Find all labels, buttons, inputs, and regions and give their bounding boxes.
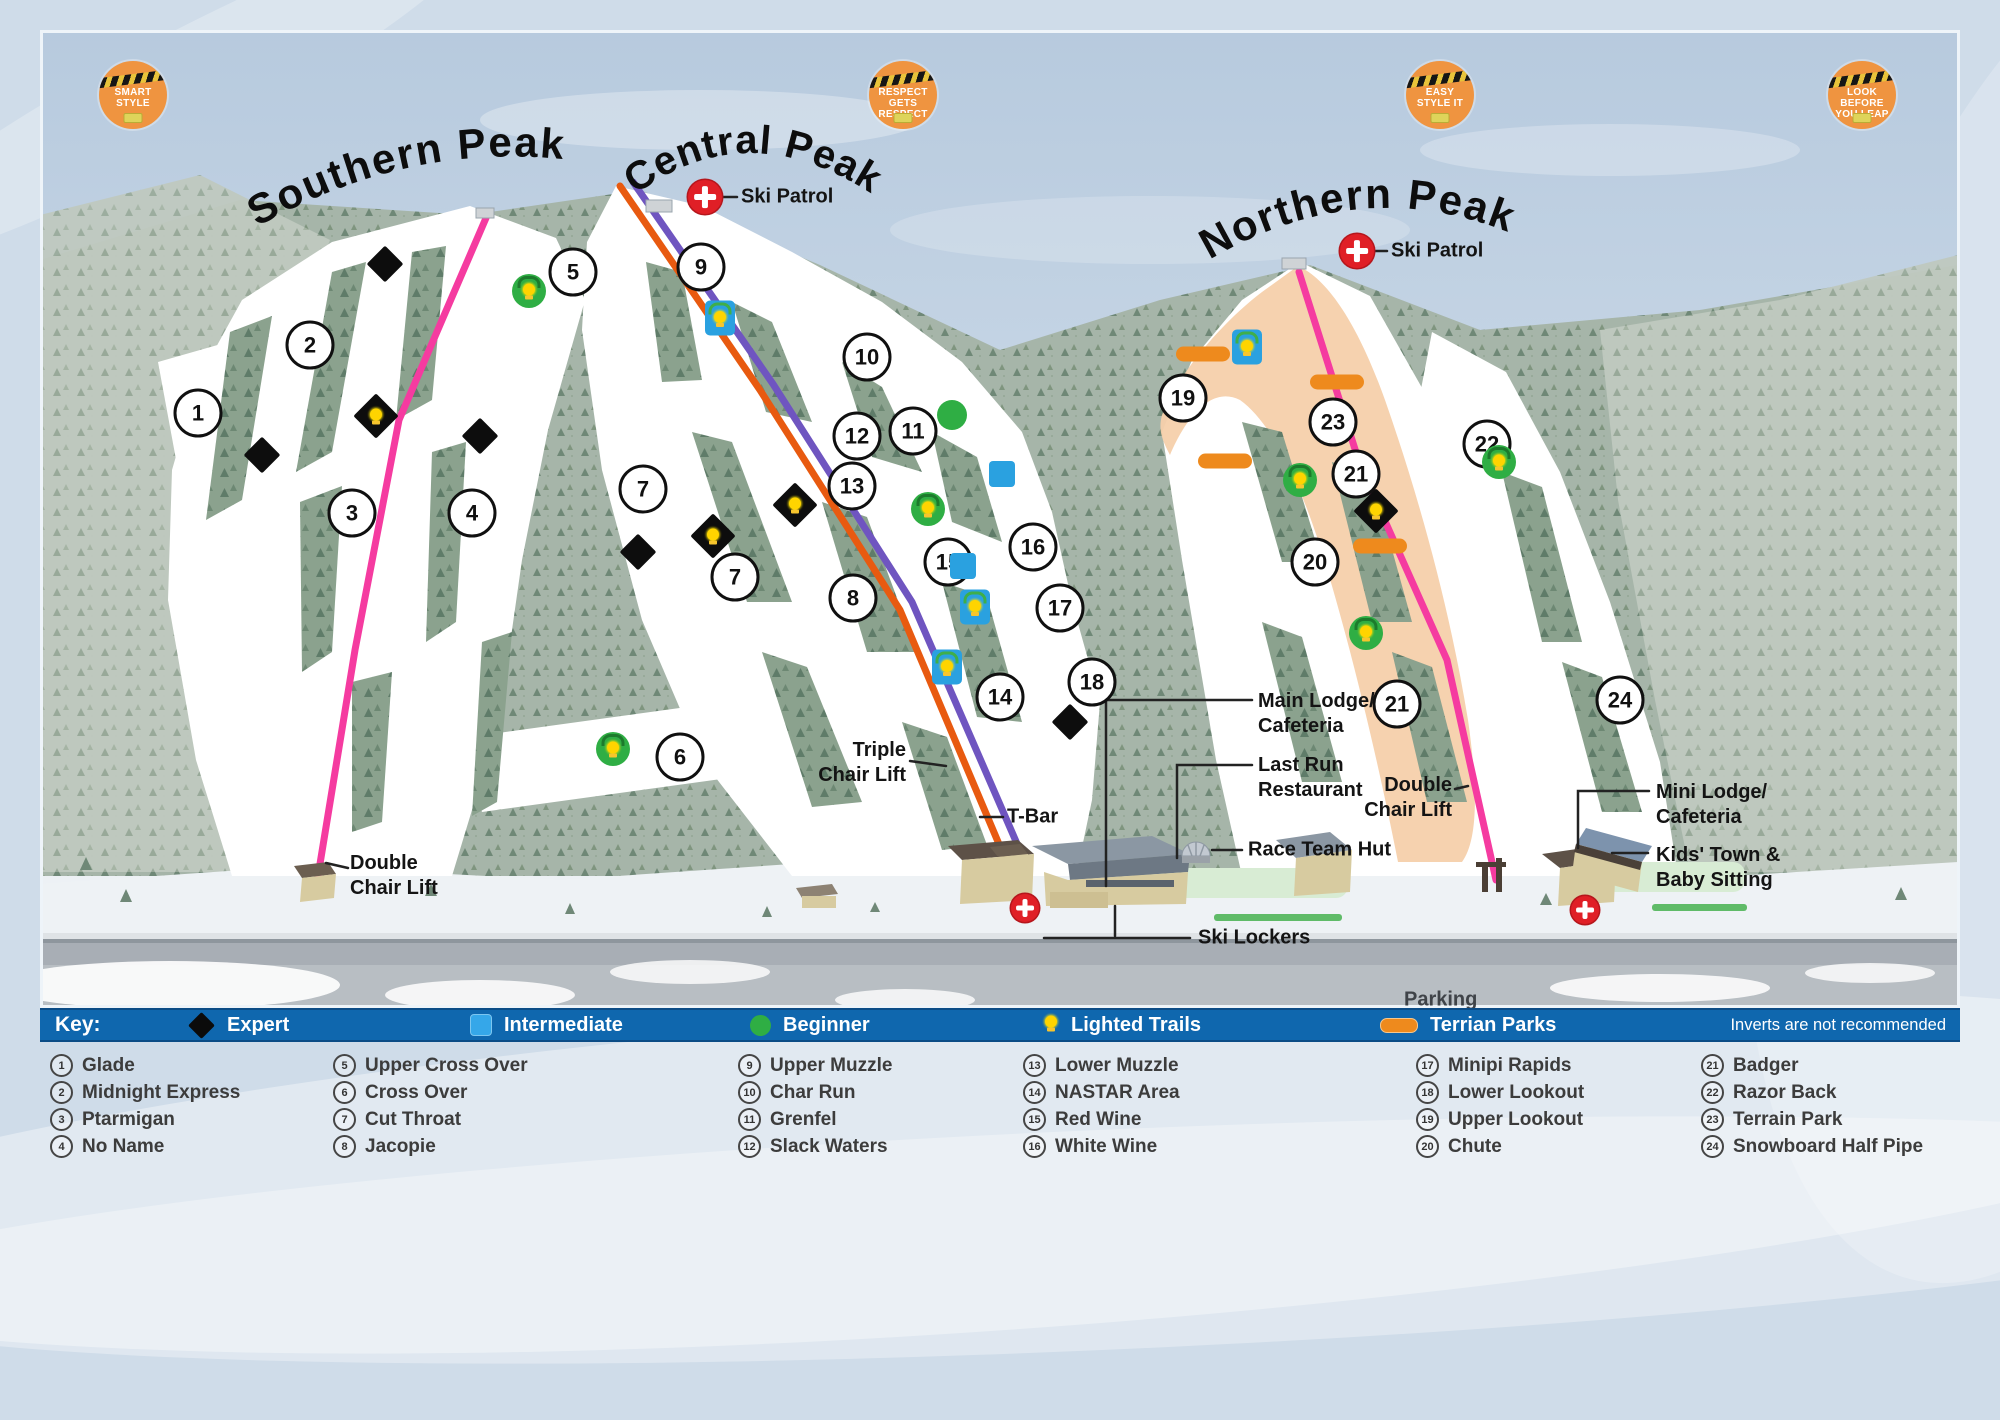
trail-list-item-20: 20Chute (1416, 1133, 1716, 1160)
trail-name: Minipi Rapids (1448, 1055, 1572, 1077)
trail-name: Lower Lookout (1448, 1082, 1584, 1104)
trail-number-badge: 14 (1023, 1081, 1046, 1104)
trail-name: Glade (82, 1055, 135, 1077)
legend-item-beginner: Beginner (750, 1010, 870, 1040)
beginner-legend-icon (750, 1015, 771, 1036)
trail-number-badge: 16 (1023, 1135, 1046, 1158)
park-legend-icon (1380, 1018, 1418, 1033)
trail-number-badge: 7 (333, 1108, 356, 1131)
trail-list-item-9: 9Upper Muzzle (738, 1052, 1038, 1079)
trail-number-badge: 23 (1701, 1108, 1724, 1131)
ski-trail-map-page: { "peaks": { "southern": "Southern Peak"… (0, 0, 2000, 1208)
trail-list-item-2: 2Midnight Express (50, 1079, 350, 1106)
trail-number-badge: 11 (738, 1108, 761, 1131)
trail-name: Midnight Express (82, 1082, 240, 1104)
legend-note: Inverts are not recommended (1730, 1010, 1946, 1040)
trail-list-item-23: 23Terrain Park (1701, 1106, 2000, 1133)
trail-list-item-12: 12Slack Waters (738, 1133, 1038, 1160)
trail-list-column-6: 21Badger22Razor Back23Terrain Park24Snow… (1701, 1052, 2000, 1160)
trail-name: Terrain Park (1733, 1109, 1842, 1131)
trail-name: Cut Throat (365, 1109, 461, 1131)
trail-list-item-22: 22Razor Back (1701, 1079, 2000, 1106)
trail-list-item-4: 4No Name (50, 1133, 350, 1160)
trail-list-item-17: 17Minipi Rapids (1416, 1052, 1716, 1079)
trail-list-item-1: 1Glade (50, 1052, 350, 1079)
trail-name: White Wine (1055, 1136, 1157, 1158)
legend-item-intermediate: Intermediate (470, 1010, 623, 1040)
trail-number-badge: 1 (50, 1054, 73, 1077)
legend-item-label: Beginner (783, 1014, 870, 1037)
trail-list-item-8: 8Jacopie (333, 1133, 633, 1160)
trail-name: Badger (1733, 1055, 1798, 1077)
trail-list-column-5: 17Minipi Rapids18Lower Lookout19Upper Lo… (1416, 1052, 1716, 1160)
trail-list-item-15: 15Red Wine (1023, 1106, 1323, 1133)
trail-list-item-5: 5Upper Cross Over (333, 1052, 633, 1079)
legend-item-lighted: Lighted Trails (1043, 1010, 1201, 1040)
trail-list-column-4: 13Lower Muzzle14NASTAR Area15Red Wine16W… (1023, 1052, 1323, 1160)
trail-list-column-1: 1Glade2Midnight Express3Ptarmigan4No Nam… (50, 1052, 350, 1160)
trail-name: Slack Waters (770, 1136, 888, 1158)
trail-name: Lower Muzzle (1055, 1055, 1179, 1077)
trail-number-badge: 8 (333, 1135, 356, 1158)
trail-number-badge: 2 (50, 1081, 73, 1104)
legend-item-label: Lighted Trails (1071, 1014, 1201, 1037)
trail-number-badge: 24 (1701, 1135, 1724, 1158)
trail-list-item-21: 21Badger (1701, 1052, 2000, 1079)
legend-item-park: Terrian Parks (1380, 1010, 1556, 1040)
trail-list-item-3: 3Ptarmigan (50, 1106, 350, 1133)
trail-number-badge: 13 (1023, 1054, 1046, 1077)
legend-bar: Key: Inverts are not recommended ExpertI… (40, 1008, 1960, 1042)
trail-name: Ptarmigan (82, 1109, 175, 1131)
trail-name: No Name (82, 1136, 164, 1158)
intermediate-legend-icon (470, 1014, 492, 1036)
lightbulb-icon (1045, 1015, 1057, 1027)
trail-name: Chute (1448, 1136, 1502, 1158)
trail-number-badge: 22 (1701, 1081, 1724, 1104)
trail-list-item-14: 14NASTAR Area (1023, 1079, 1323, 1106)
trail-list-item-18: 18Lower Lookout (1416, 1079, 1716, 1106)
legend-item-label: Terrian Parks (1430, 1014, 1556, 1037)
trail-name: Char Run (770, 1082, 856, 1104)
trail-list-item-24: 24Snowboard Half Pipe (1701, 1133, 2000, 1160)
trail-name: Grenfel (770, 1109, 837, 1131)
trail-name: Red Wine (1055, 1109, 1141, 1131)
trail-number-badge: 21 (1701, 1054, 1724, 1077)
trail-number-badge: 20 (1416, 1135, 1439, 1158)
trail-number-badge: 10 (738, 1081, 761, 1104)
trail-number-badge: 9 (738, 1054, 761, 1077)
lighted-legend-icon (1043, 1013, 1059, 1037)
trail-number-badge: 18 (1416, 1081, 1439, 1104)
trail-list-item-13: 13Lower Muzzle (1023, 1052, 1323, 1079)
legend-key-label: Key: (55, 1010, 101, 1040)
trail-number-badge: 6 (333, 1081, 356, 1104)
trail-name: Upper Muzzle (770, 1055, 892, 1077)
trail-list-item-7: 7Cut Throat (333, 1106, 633, 1133)
road-and-parking (0, 933, 1960, 1011)
trail-number-badge: 17 (1416, 1054, 1439, 1077)
trail-name: Upper Lookout (1448, 1109, 1583, 1131)
trail-list-item-19: 19Upper Lookout (1416, 1106, 1716, 1133)
small-hut (796, 884, 838, 908)
legend-item-label: Expert (227, 1014, 289, 1037)
trail-number-badge: 3 (50, 1108, 73, 1131)
trail-name: NASTAR Area (1055, 1082, 1180, 1104)
trail-list-item-11: 11Grenfel (738, 1106, 1038, 1133)
trail-number-badge: 4 (50, 1135, 73, 1158)
trail-list-item-6: 6Cross Over (333, 1079, 633, 1106)
trail-number-badge: 5 (333, 1054, 356, 1077)
trail-name: Razor Back (1733, 1082, 1837, 1104)
legend-item-label: Intermediate (504, 1014, 623, 1037)
trail-name: Jacopie (365, 1136, 436, 1158)
trail-number-badge: 15 (1023, 1108, 1046, 1131)
trail-list-item-10: 10Char Run (738, 1079, 1038, 1106)
trail-number-badge: 12 (738, 1135, 761, 1158)
trail-list-item-16: 16White Wine (1023, 1133, 1323, 1160)
trail-name: Cross Over (365, 1082, 467, 1104)
trail-list-column-2: 5Upper Cross Over6Cross Over7Cut Throat8… (333, 1052, 633, 1160)
trail-name: Snowboard Half Pipe (1733, 1136, 1923, 1158)
trail-list-column-3: 9Upper Muzzle10Char Run11Grenfel12Slack … (738, 1052, 1038, 1160)
trail-number-badge: 19 (1416, 1108, 1439, 1131)
expert-legend-icon (188, 1012, 215, 1039)
trail-name: Upper Cross Over (365, 1055, 528, 1077)
legend-item-expert: Expert (188, 1010, 289, 1040)
